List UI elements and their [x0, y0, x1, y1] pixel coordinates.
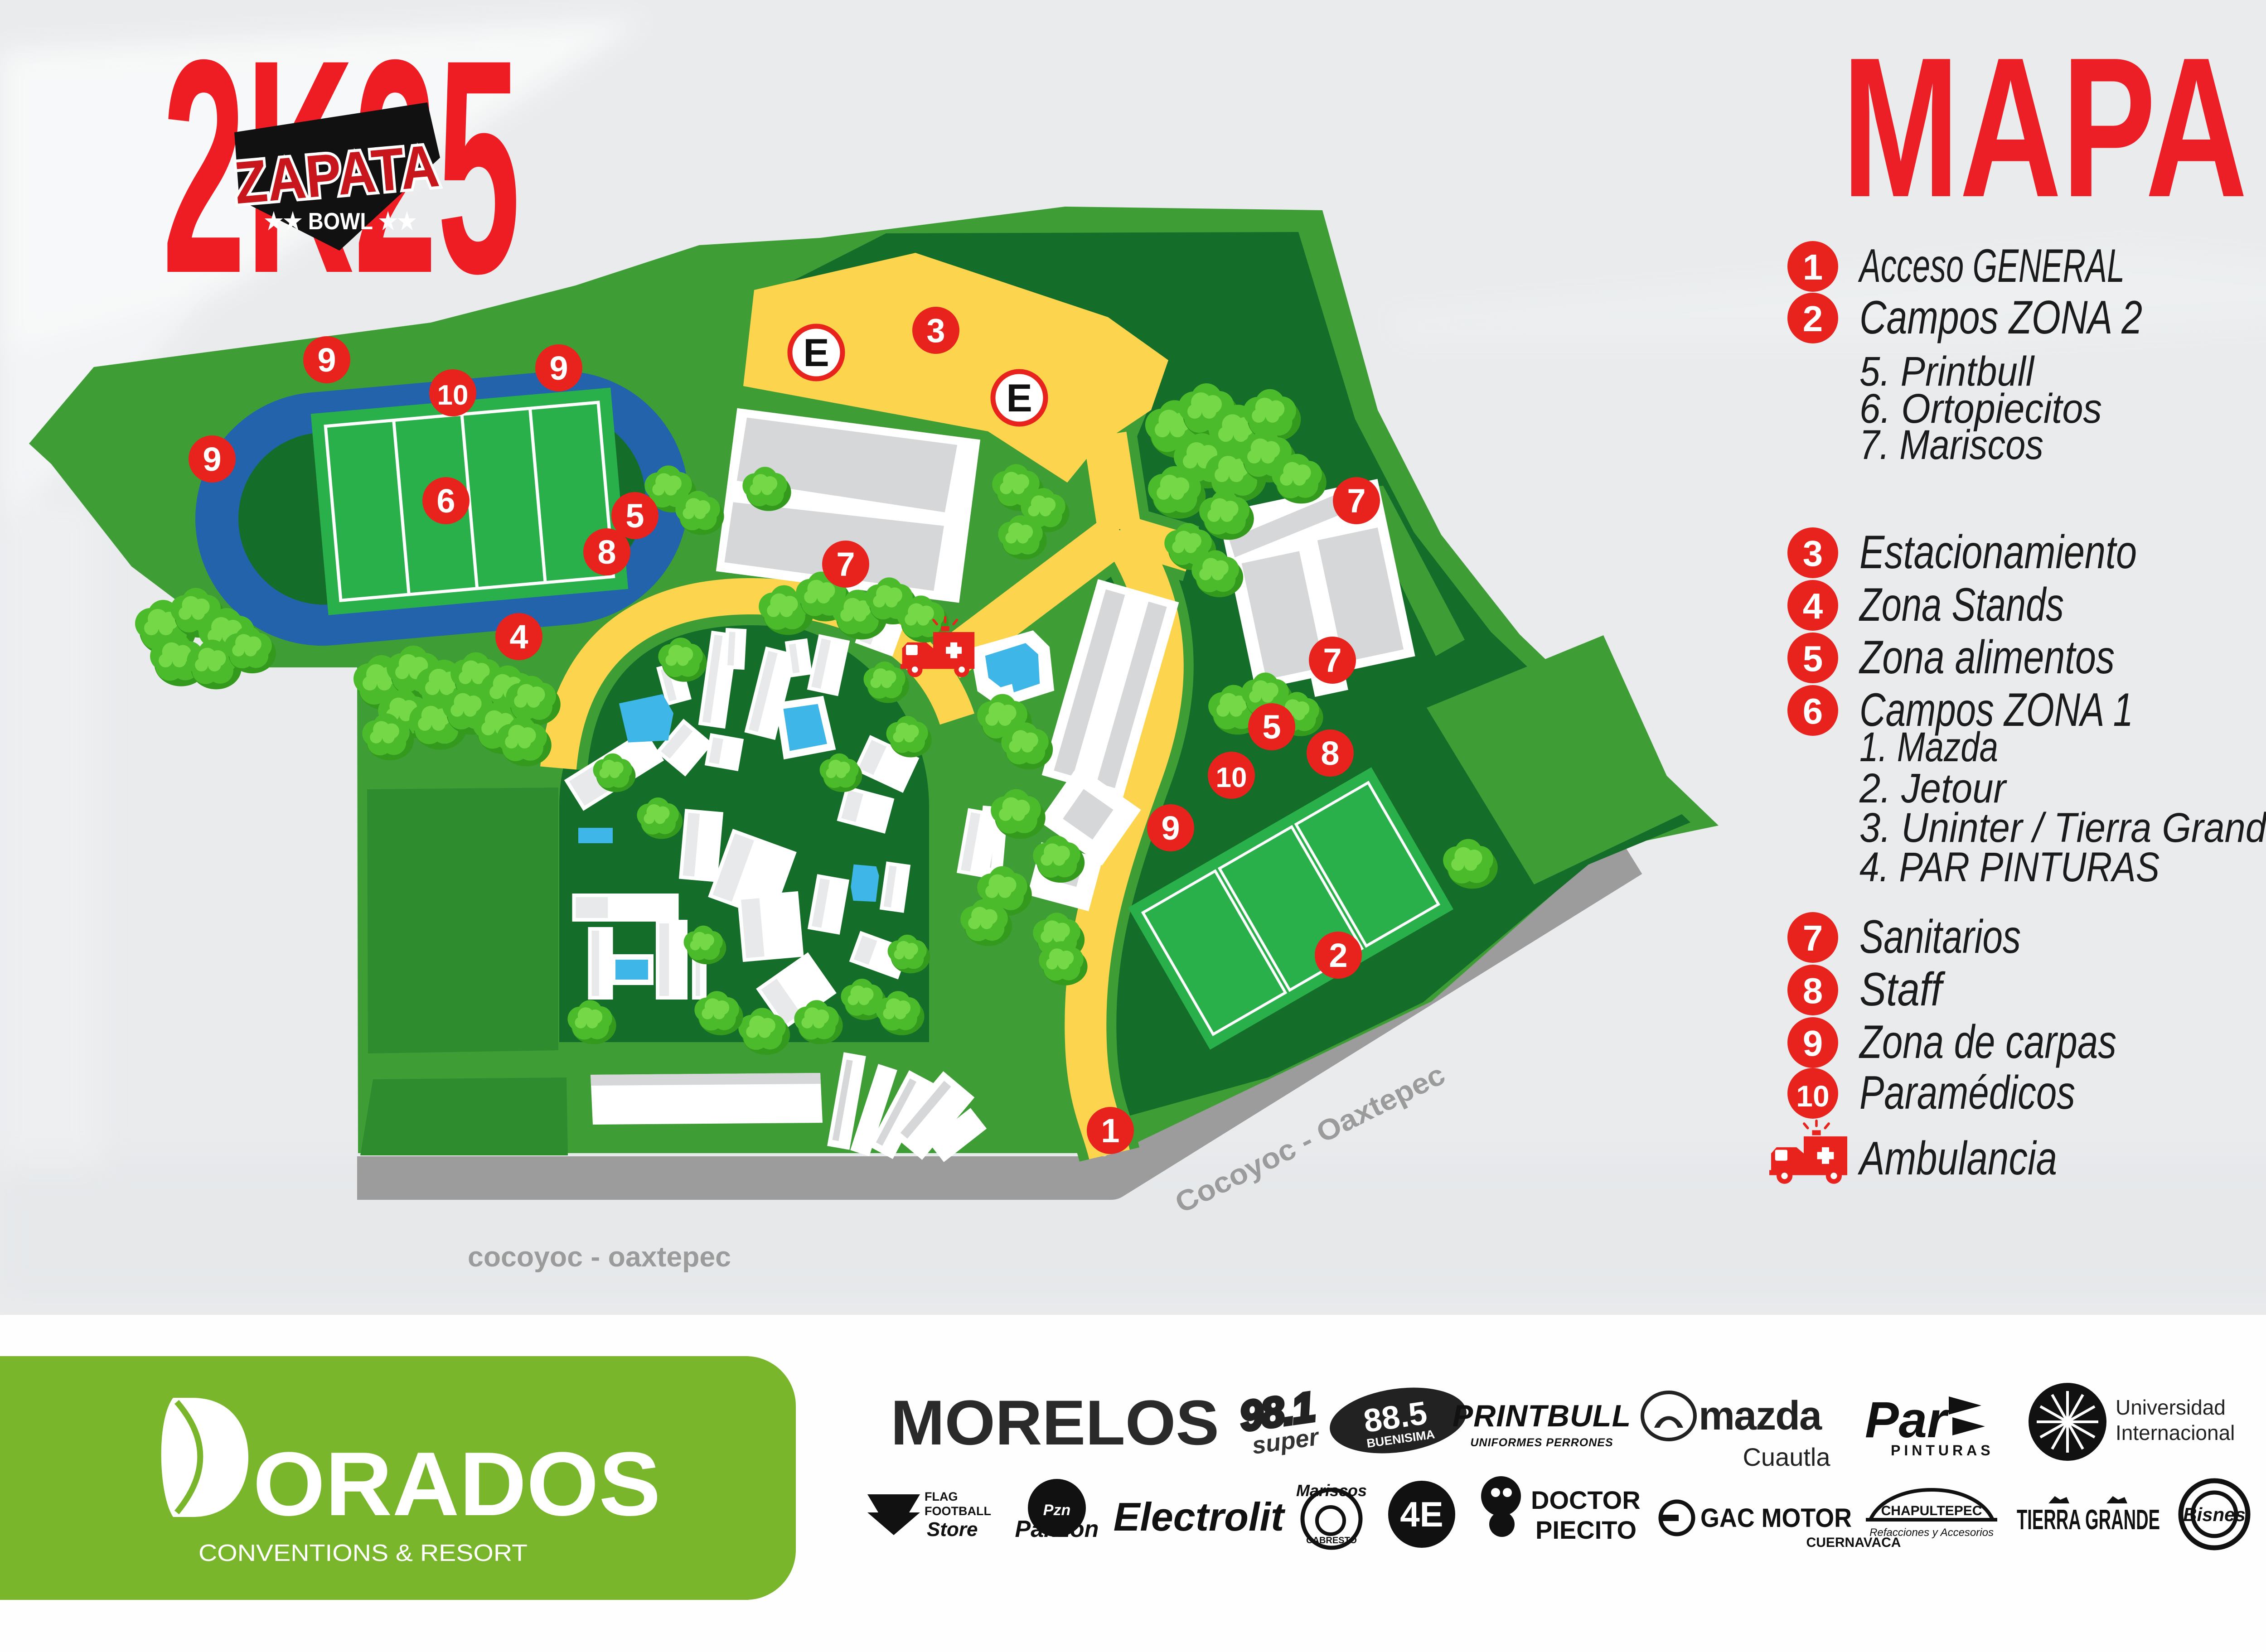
svg-text:Pzn: Pzn [1043, 1502, 1070, 1519]
svg-text:1: 1 [1101, 1112, 1119, 1150]
svg-text:Zona alimentos: Zona alimentos [1859, 631, 2115, 684]
svg-text:Internacional: Internacional [2116, 1421, 2235, 1444]
svg-text:3: 3 [926, 312, 945, 349]
svg-text:CHAPULTEPEC: CHAPULTEPEC [1881, 1503, 1982, 1518]
svg-text:8: 8 [1321, 734, 1339, 772]
svg-text:DOCTOR: DOCTOR [1531, 1486, 1641, 1514]
svg-text:Electrolit: Electrolit [1114, 1494, 1286, 1539]
svg-text:MAPA: MAPA [1842, 16, 2247, 239]
svg-text:MORELOS: MORELOS [891, 1387, 1219, 1458]
svg-text:10: 10 [437, 380, 469, 411]
svg-text:7: 7 [1803, 918, 1823, 958]
svg-text:TIERRA GRANDE: TIERRA GRANDE [2017, 1504, 2160, 1536]
svg-text:7. Mariscos: 7. Mariscos [1859, 422, 2043, 468]
svg-text:Sanitarios: Sanitarios [1859, 911, 2021, 963]
svg-text:5: 5 [625, 497, 644, 535]
svg-text:8: 8 [597, 533, 616, 571]
svg-text:7: 7 [836, 546, 855, 583]
svg-text:FLAG: FLAG [925, 1490, 958, 1503]
svg-text:ORADOS: ORADOS [253, 1434, 661, 1535]
svg-text:2: 2 [1329, 937, 1347, 974]
svg-text:1. Mazda: 1. Mazda [1859, 724, 1998, 770]
svg-text:9: 9 [1161, 809, 1180, 847]
svg-text:9: 9 [549, 349, 568, 387]
svg-text:PIECITO: PIECITO [1535, 1516, 1637, 1544]
svg-text:Acceso GENERAL: Acceso GENERAL [1858, 240, 2125, 292]
svg-text:Universidad: Universidad [2116, 1396, 2226, 1419]
svg-text:★★ BOWL ★★: ★★ BOWL ★★ [264, 208, 416, 235]
svg-text:2: 2 [1803, 299, 1823, 339]
svg-text:mazda: mazda [1699, 1393, 1822, 1439]
svg-text:Bisnes: Bisnes [2183, 1504, 2246, 1525]
svg-text:Panzón: Panzón [1015, 1516, 1099, 1542]
svg-text:CONVENTIONS & RESORT: CONVENTIONS & RESORT [199, 1540, 528, 1566]
svg-text:CABRESTO: CABRESTO [1306, 1536, 1357, 1546]
svg-text:Ambulancia: Ambulancia [1857, 1132, 2057, 1185]
svg-text:Zona de carpas: Zona de carpas [1859, 1016, 2116, 1068]
svg-text:4: 4 [1803, 586, 1823, 626]
svg-text:Zona Stands: Zona Stands [1859, 579, 2064, 631]
svg-text:cocoyoc - oaxtepec: cocoyoc - oaxtepec [468, 1241, 731, 1273]
svg-text:4: 4 [509, 618, 528, 656]
svg-text:UNIFORMES PERRONES: UNIFORMES PERRONES [1470, 1436, 1613, 1449]
svg-text:Cuautla: Cuautla [1743, 1443, 1830, 1471]
svg-text:5: 5 [1262, 708, 1281, 746]
svg-text:Campos ZONA 2: Campos ZONA 2 [1859, 291, 2142, 344]
svg-text:Paramédicos: Paramédicos [1859, 1067, 2075, 1119]
svg-text:Mariscos: Mariscos [1296, 1481, 1367, 1500]
svg-text:1: 1 [1803, 247, 1823, 287]
svg-text:FOOTBALL: FOOTBALL [925, 1504, 991, 1518]
svg-text:9: 9 [317, 341, 336, 379]
svg-text:Estacionamiento: Estacionamiento [1859, 526, 2137, 579]
svg-text:Store: Store [927, 1518, 978, 1541]
svg-text:PINTURAS: PINTURAS [1891, 1442, 1994, 1459]
svg-text:E: E [1006, 377, 1032, 420]
svg-text:4. PAR PINTURAS: 4. PAR PINTURAS [1859, 844, 2159, 890]
svg-text:3: 3 [1803, 533, 1823, 574]
svg-text:7: 7 [1323, 642, 1341, 679]
svg-text:Refacciones y Accesorios: Refacciones y Accesorios [1869, 1526, 1994, 1539]
svg-text:Par: Par [1865, 1391, 1949, 1448]
svg-text:9: 9 [203, 440, 221, 478]
svg-text:7: 7 [1347, 482, 1365, 520]
svg-text:9: 9 [1803, 1023, 1823, 1063]
svg-text:E: E [803, 331, 829, 375]
svg-text:6: 6 [436, 482, 455, 520]
svg-text:10: 10 [1216, 762, 1247, 793]
svg-text:PRINTBULL: PRINTBULL [1453, 1399, 1631, 1433]
svg-text:8: 8 [1803, 971, 1823, 1011]
svg-text:6: 6 [1803, 691, 1823, 731]
svg-text:4E: 4E [1400, 1494, 1443, 1534]
svg-text:GAC MOTOR: GAC MOTOR [1700, 1503, 1852, 1533]
svg-text:10: 10 [1796, 1079, 1829, 1113]
svg-text:Staff: Staff [1859, 963, 1946, 1016]
svg-text:5: 5 [1803, 638, 1823, 679]
